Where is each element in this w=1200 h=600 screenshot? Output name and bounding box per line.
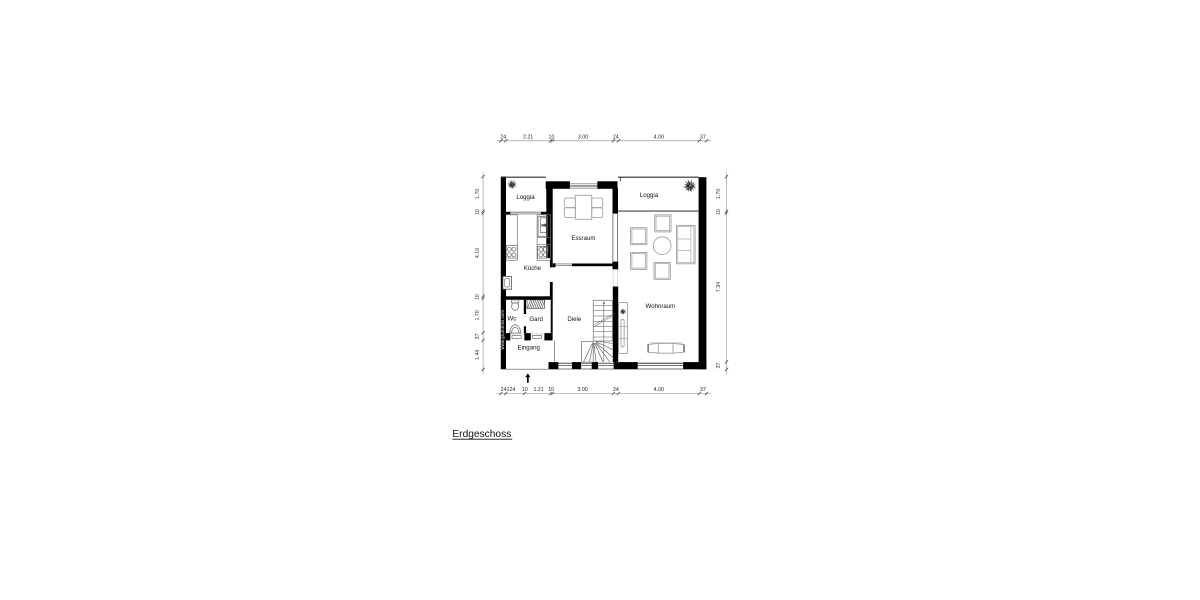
svg-text:37: 37 <box>716 363 722 369</box>
svg-text:2.21: 2.21 <box>523 134 533 140</box>
svg-text:1.70: 1.70 <box>475 189 481 199</box>
svg-text:Diele: Diele <box>567 316 581 323</box>
svg-text:24: 24 <box>500 134 506 140</box>
svg-text:10: 10 <box>716 209 722 215</box>
svg-text:Wohnraum: Wohnraum <box>646 303 676 310</box>
svg-text:10: 10 <box>548 387 554 393</box>
svg-text:Wc: Wc <box>507 316 516 323</box>
svg-text:1.70: 1.70 <box>716 189 722 199</box>
svg-text:Loggia: Loggia <box>640 192 659 199</box>
svg-text:Essraum: Essraum <box>571 235 595 242</box>
svg-text:Erdgeschoss: Erdgeschoss <box>452 429 511 440</box>
svg-text:24: 24 <box>613 134 619 140</box>
svg-text:7.34: 7.34 <box>716 282 722 292</box>
svg-text:24: 24 <box>613 387 619 393</box>
svg-text:37: 37 <box>475 333 481 339</box>
svg-text:37: 37 <box>700 387 706 393</box>
svg-text:37: 37 <box>700 134 706 140</box>
svg-text:1.44: 1.44 <box>475 350 481 360</box>
svg-text:10: 10 <box>475 294 481 300</box>
svg-text:3.00: 3.00 <box>577 387 587 393</box>
svg-text:10: 10 <box>549 134 555 140</box>
svg-text:1.70: 1.70 <box>475 310 481 320</box>
svg-text:4.10: 4.10 <box>475 248 481 258</box>
svg-text:Gard: Gard <box>529 316 543 323</box>
svg-text:10: 10 <box>475 209 481 215</box>
svg-text:1.21: 1.21 <box>533 387 543 393</box>
svg-text:Loggia: Loggia <box>516 194 535 201</box>
svg-text:3.00: 3.00 <box>578 134 588 140</box>
svg-text:10: 10 <box>522 387 528 393</box>
svg-text:Küche: Küche <box>524 265 542 272</box>
svg-text:4.00: 4.00 <box>654 387 664 393</box>
svg-text:4.00: 4.00 <box>654 134 664 140</box>
svg-text:www.grundriss.com: www.grundriss.com <box>500 309 505 349</box>
svg-text:Eingang: Eingang <box>518 344 540 351</box>
svg-text:24124: 24124 <box>501 387 516 393</box>
